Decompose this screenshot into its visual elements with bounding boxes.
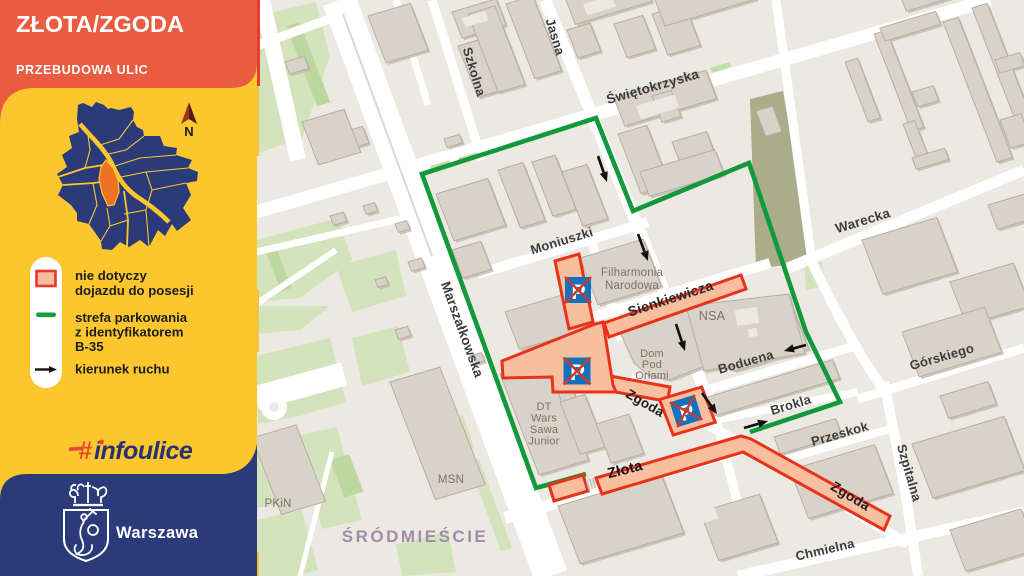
svg-text:#: # xyxy=(78,437,92,465)
svg-text:Warszawa: Warszawa xyxy=(116,524,199,542)
svg-text:NSA: NSA xyxy=(699,309,726,323)
svg-text:Filharmonia: Filharmonia xyxy=(601,267,664,279)
svg-text:dojazdu do posesji: dojazdu do posesji xyxy=(75,283,194,298)
svg-text:kierunek ruchu: kierunek ruchu xyxy=(75,362,170,377)
svg-text:PKiN: PKiN xyxy=(264,498,291,510)
svg-text:N: N xyxy=(184,124,193,139)
svg-text:Narodowa: Narodowa xyxy=(605,280,659,292)
svg-text:z identyfikatorem: z identyfikatorem xyxy=(75,325,183,340)
svg-text:Junior: Junior xyxy=(528,436,559,448)
svg-text:MSN: MSN xyxy=(438,474,464,486)
svg-text:Orłami: Orłami xyxy=(635,370,669,382)
svg-text:Wars: Wars xyxy=(531,413,557,425)
svg-text:infoulice: infoulice xyxy=(94,437,193,465)
svg-text:Sawa: Sawa xyxy=(530,424,559,436)
svg-text:strefa parkowania: strefa parkowania xyxy=(75,310,188,325)
svg-text:ŚRÓDMIEŚCIE: ŚRÓDMIEŚCIE xyxy=(342,527,489,546)
svg-text:nie dotyczy: nie dotyczy xyxy=(75,268,147,283)
svg-text:B-35: B-35 xyxy=(75,339,104,354)
svg-text:DT: DT xyxy=(536,401,551,413)
